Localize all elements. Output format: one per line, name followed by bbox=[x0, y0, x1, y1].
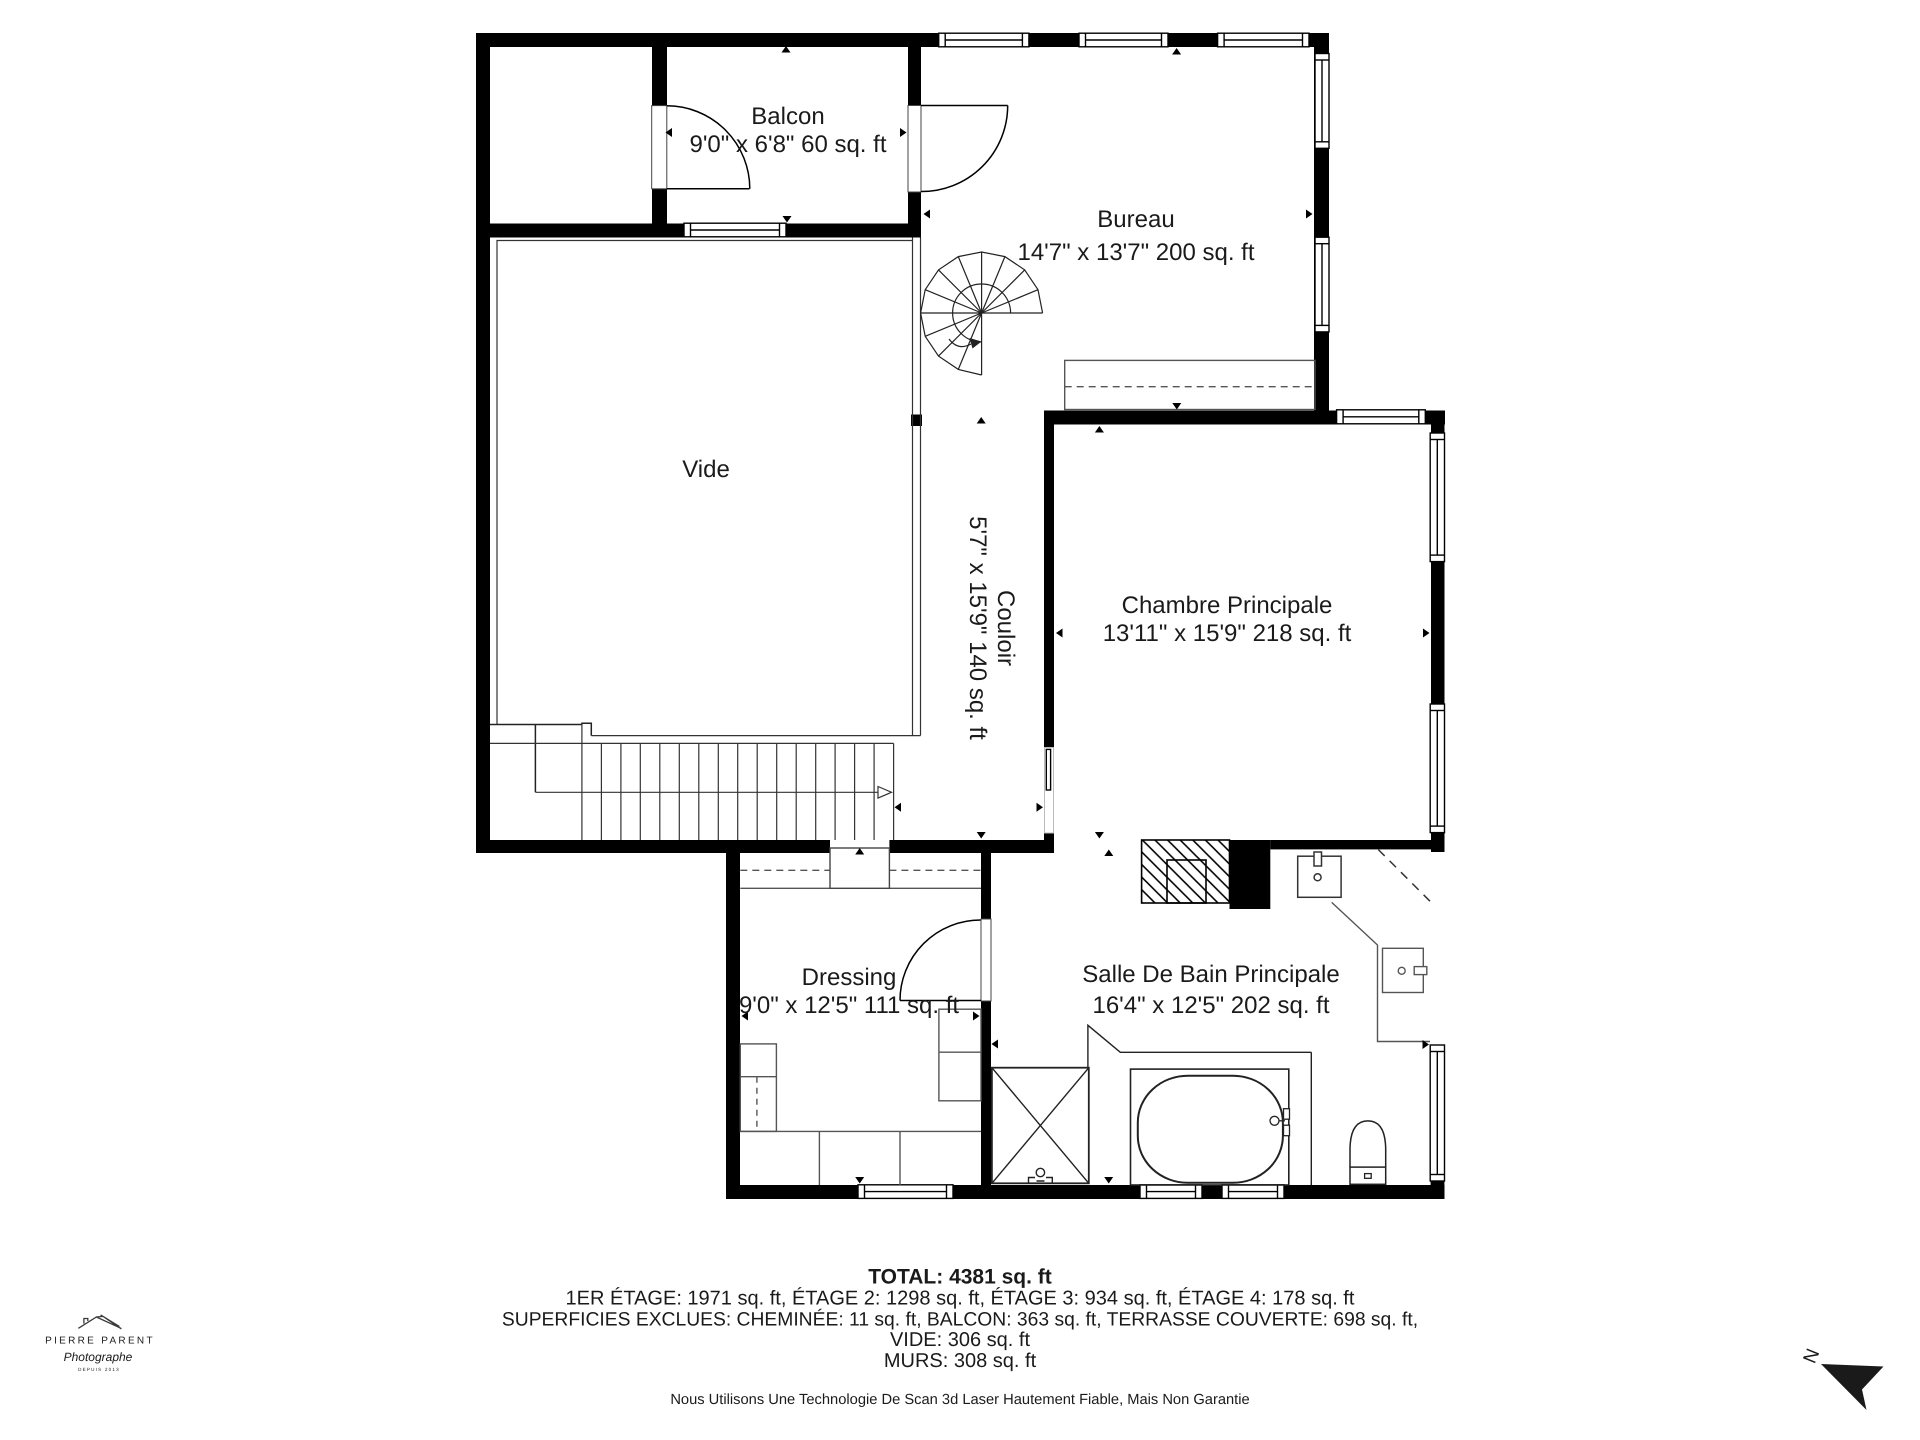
svg-text:16'4" x 12'5" 202 sq. ft: 16'4" x 12'5" 202 sq. ft bbox=[1092, 992, 1329, 1019]
svg-text:Salle De Bain Principale: Salle De Bain Principale bbox=[1082, 961, 1339, 988]
svg-text:PIERRE PARENT: PIERRE PARENT bbox=[45, 1336, 155, 1347]
svg-text:14'7" x 13'7" 200 sq. ft: 14'7" x 13'7" 200 sq. ft bbox=[1017, 239, 1254, 266]
svg-text:9'0" x 6'8" 60 sq. ft: 9'0" x 6'8" 60 sq. ft bbox=[690, 131, 887, 158]
svg-text:Dressing: Dressing bbox=[802, 964, 897, 991]
svg-text:DEPUIS 2013: DEPUIS 2013 bbox=[78, 1367, 120, 1372]
svg-text:Chambre Principale: Chambre Principale bbox=[1122, 592, 1333, 619]
svg-text:Couloir: Couloir bbox=[992, 590, 1019, 666]
svg-text:13'11" x 15'9" 218 sq. ft: 13'11" x 15'9" 218 sq. ft bbox=[1103, 620, 1352, 647]
svg-text:Bureau: Bureau bbox=[1097, 206, 1174, 233]
svg-text:SUPERFICIES EXCLUES: CHEMINÉE:: SUPERFICIES EXCLUES: CHEMINÉE: 11 sq. ft… bbox=[502, 1308, 1418, 1330]
svg-text:Photographe: Photographe bbox=[64, 1350, 133, 1364]
svg-text:TOTAL: 4381 sq. ft: TOTAL: 4381 sq. ft bbox=[868, 1266, 1052, 1289]
svg-text:5'7" x 15'9" 140 sq. ft: 5'7" x 15'9" 140 sq. ft bbox=[964, 516, 991, 740]
svg-text:Vide: Vide bbox=[682, 456, 730, 483]
svg-text:MURS: 308 sq. ft: MURS: 308 sq. ft bbox=[884, 1350, 1037, 1372]
svg-text:VIDE: 306 sq. ft: VIDE: 306 sq. ft bbox=[890, 1329, 1031, 1351]
svg-text:Balcon: Balcon bbox=[751, 103, 824, 130]
svg-text:1ER ÉTAGE: 1971 sq. ft, ÉTAGE: 1ER ÉTAGE: 1971 sq. ft, ÉTAGE 2: 1298 sq… bbox=[566, 1287, 1355, 1310]
svg-text:9'0" x 12'5" 111 sq. ft: 9'0" x 12'5" 111 sq. ft bbox=[739, 992, 959, 1019]
svg-text:Nous Utilisons Une Technologie: Nous Utilisons Une Technologie De Scan 3… bbox=[670, 1392, 1249, 1408]
